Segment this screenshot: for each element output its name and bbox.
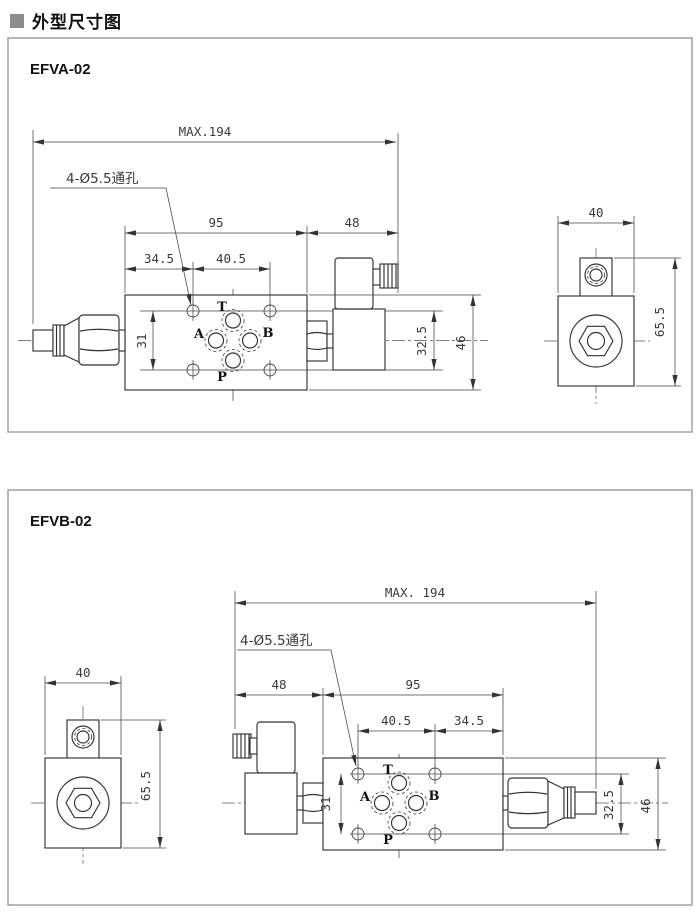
- dimension-drawing: EFVA-02: [0, 0, 700, 920]
- dim-solenoid-width: 48: [271, 677, 286, 692]
- port-label-p: P: [217, 370, 227, 385]
- dim-side-width: 40: [75, 665, 90, 680]
- leader-label-through-holes: 4-Ø5.5通孔: [66, 171, 139, 187]
- dim-body-height: 46: [638, 798, 653, 813]
- cable-gland: [380, 264, 398, 288]
- panel-efva-02: EFVA-02: [8, 38, 692, 432]
- port-label-t: T: [217, 300, 227, 315]
- dim-hole-pitch: 40.5: [216, 251, 246, 266]
- dim-coil-height: 32.5: [601, 790, 616, 820]
- coil-connector: [335, 258, 373, 309]
- dim-overall-length: MAX.194: [179, 124, 232, 139]
- dim-hole-pitch: 40.5: [381, 713, 411, 728]
- solenoid-coil: [245, 773, 297, 834]
- port-label-a: A: [359, 790, 371, 805]
- dim-solenoid-width: 48: [344, 215, 359, 230]
- coil-connector: [257, 722, 295, 773]
- port-label-b: B: [263, 326, 274, 341]
- dim-body-width: 95: [405, 677, 420, 692]
- model-label: EFVA-02: [30, 61, 91, 78]
- port-label-b: B: [429, 789, 440, 804]
- dim-body-height: 46: [453, 335, 468, 350]
- dim-overall-length: MAX. 194: [385, 585, 445, 600]
- port-label-a: A: [193, 327, 205, 342]
- cable-gland: [233, 734, 251, 758]
- catalog-page: 外型尺寸图 EFVA-02: [0, 0, 700, 920]
- dim-body-width: 95: [208, 215, 223, 230]
- port-label-t: T: [383, 763, 393, 778]
- dim-hole-offset: 34.5: [144, 251, 174, 266]
- port-label-p: P: [383, 833, 393, 848]
- dim-side-width: 40: [588, 205, 603, 220]
- dim-hole-offset: 34.5: [454, 713, 484, 728]
- solenoid-coil: [333, 309, 385, 370]
- dim-coil-height: 32.5: [414, 326, 429, 356]
- dim-hole-pitch-v: 31: [134, 333, 149, 348]
- dim-side-height: 65.5: [138, 771, 153, 801]
- model-label: EFVB-02: [30, 513, 92, 530]
- dim-side-height: 65.5: [652, 307, 667, 337]
- leader-label-through-holes: 4-Ø5.5通孔: [240, 633, 313, 649]
- panel-efvb-02: EFVB-02: [8, 490, 692, 905]
- dim-hole-pitch-v: 31: [318, 796, 333, 811]
